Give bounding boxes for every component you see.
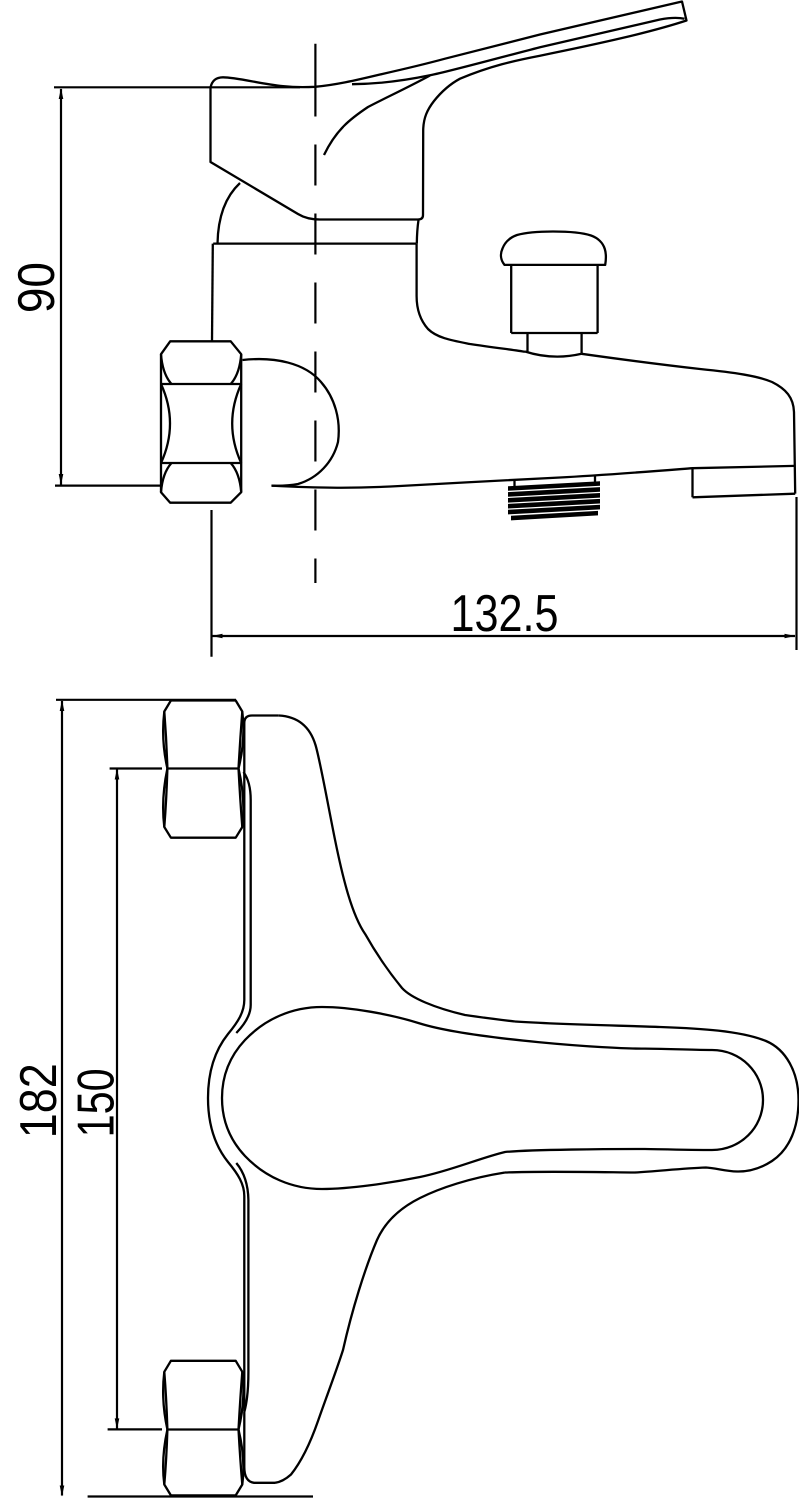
svg-text:150: 150 bbox=[68, 1068, 126, 1137]
svg-text:182: 182 bbox=[10, 1063, 68, 1138]
svg-text:90: 90 bbox=[8, 262, 66, 313]
svg-text:132.5: 132.5 bbox=[451, 585, 559, 643]
